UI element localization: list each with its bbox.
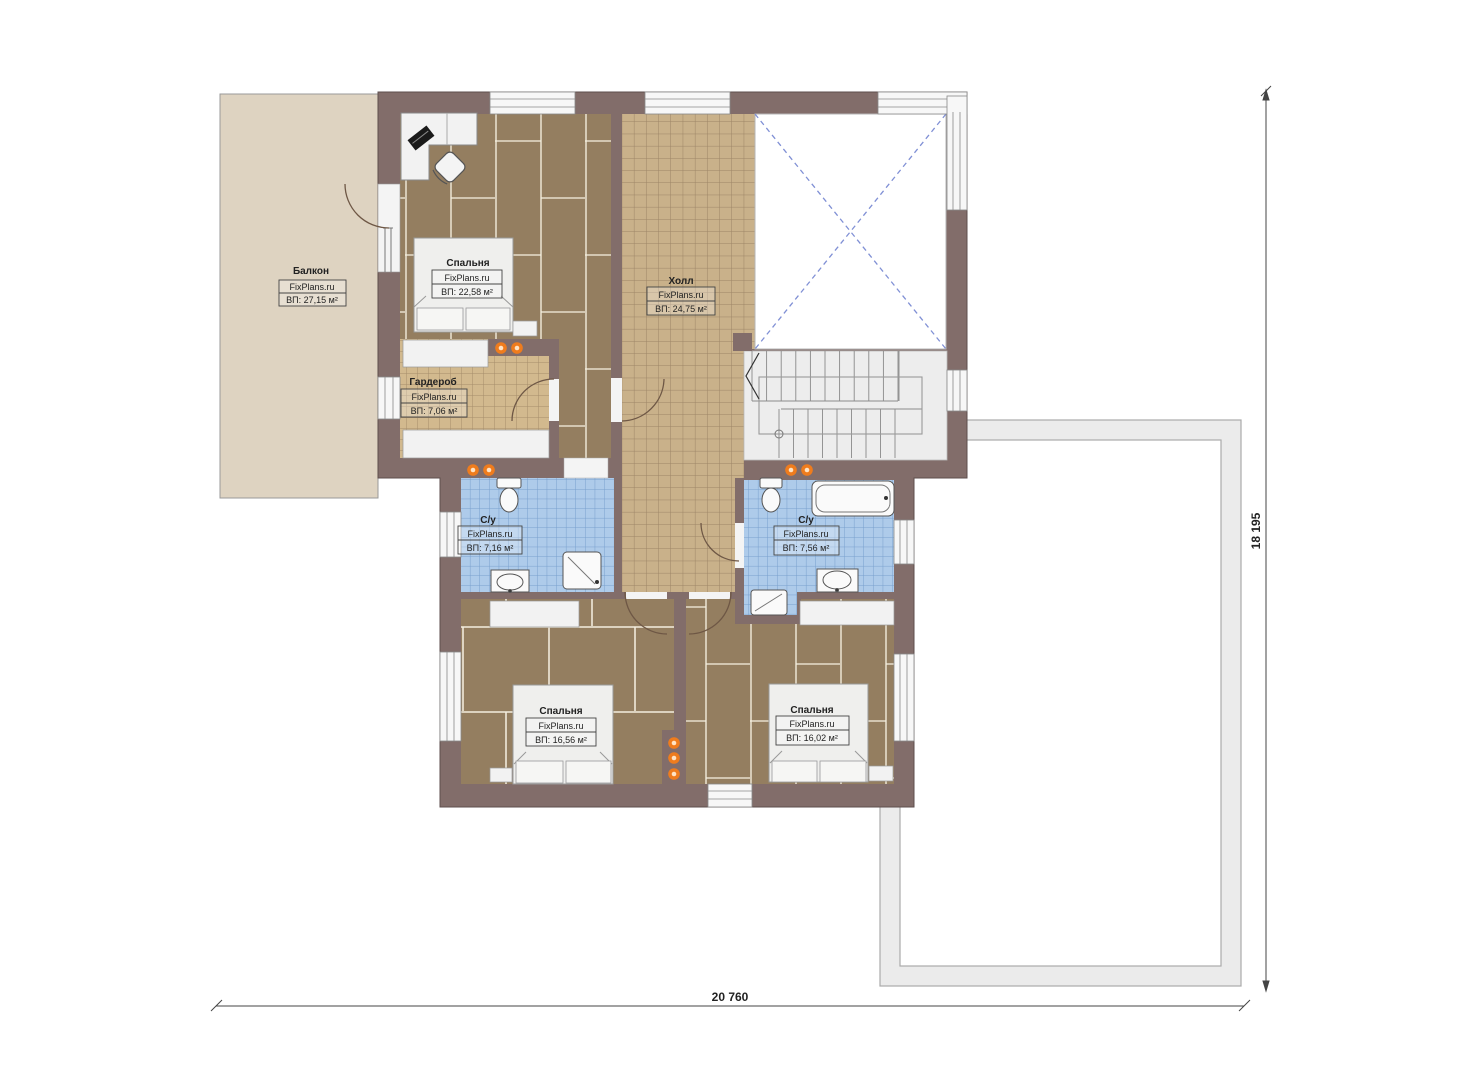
svg-text:ВП: 7,56 м²: ВП: 7,56 м²	[783, 543, 830, 553]
svg-text:Спальня: Спальня	[446, 258, 489, 269]
svg-text:ВП: 7,16 м²: ВП: 7,16 м²	[467, 543, 514, 553]
svg-text:18 195: 18 195	[1249, 512, 1263, 549]
svg-text:С/у: С/у	[480, 515, 496, 526]
svg-text:Спальня: Спальня	[539, 706, 582, 717]
svg-text:Балкон: Балкон	[293, 266, 329, 277]
svg-text:С/у: С/у	[798, 515, 814, 526]
svg-text:FixPlans.ru: FixPlans.ru	[467, 529, 512, 539]
svg-text:ВП: 16,56 м²: ВП: 16,56 м²	[535, 735, 587, 745]
svg-text:Гардероб: Гардероб	[409, 376, 456, 388]
svg-text:ВП: 27,15 м²: ВП: 27,15 м²	[286, 295, 338, 305]
svg-text:FixPlans.ru: FixPlans.ru	[411, 392, 456, 402]
svg-text:20 760: 20 760	[712, 990, 749, 1004]
svg-text:FixPlans.ru: FixPlans.ru	[444, 273, 489, 283]
svg-text:ВП: 24,75 м²: ВП: 24,75 м²	[655, 304, 707, 314]
svg-text:Спальня: Спальня	[790, 705, 833, 716]
svg-text:ВП: 7,06 м²: ВП: 7,06 м²	[411, 406, 458, 416]
svg-text:Холл: Холл	[668, 276, 693, 287]
svg-text:FixPlans.ru: FixPlans.ru	[289, 282, 334, 292]
svg-text:FixPlans.ru: FixPlans.ru	[789, 719, 834, 729]
svg-text:FixPlans.ru: FixPlans.ru	[658, 290, 703, 300]
svg-text:FixPlans.ru: FixPlans.ru	[783, 529, 828, 539]
svg-text:ВП: 16,02 м²: ВП: 16,02 м²	[786, 733, 838, 743]
svg-text:ВП: 22,58 м²: ВП: 22,58 м²	[441, 287, 493, 297]
svg-text:FixPlans.ru: FixPlans.ru	[538, 721, 583, 731]
